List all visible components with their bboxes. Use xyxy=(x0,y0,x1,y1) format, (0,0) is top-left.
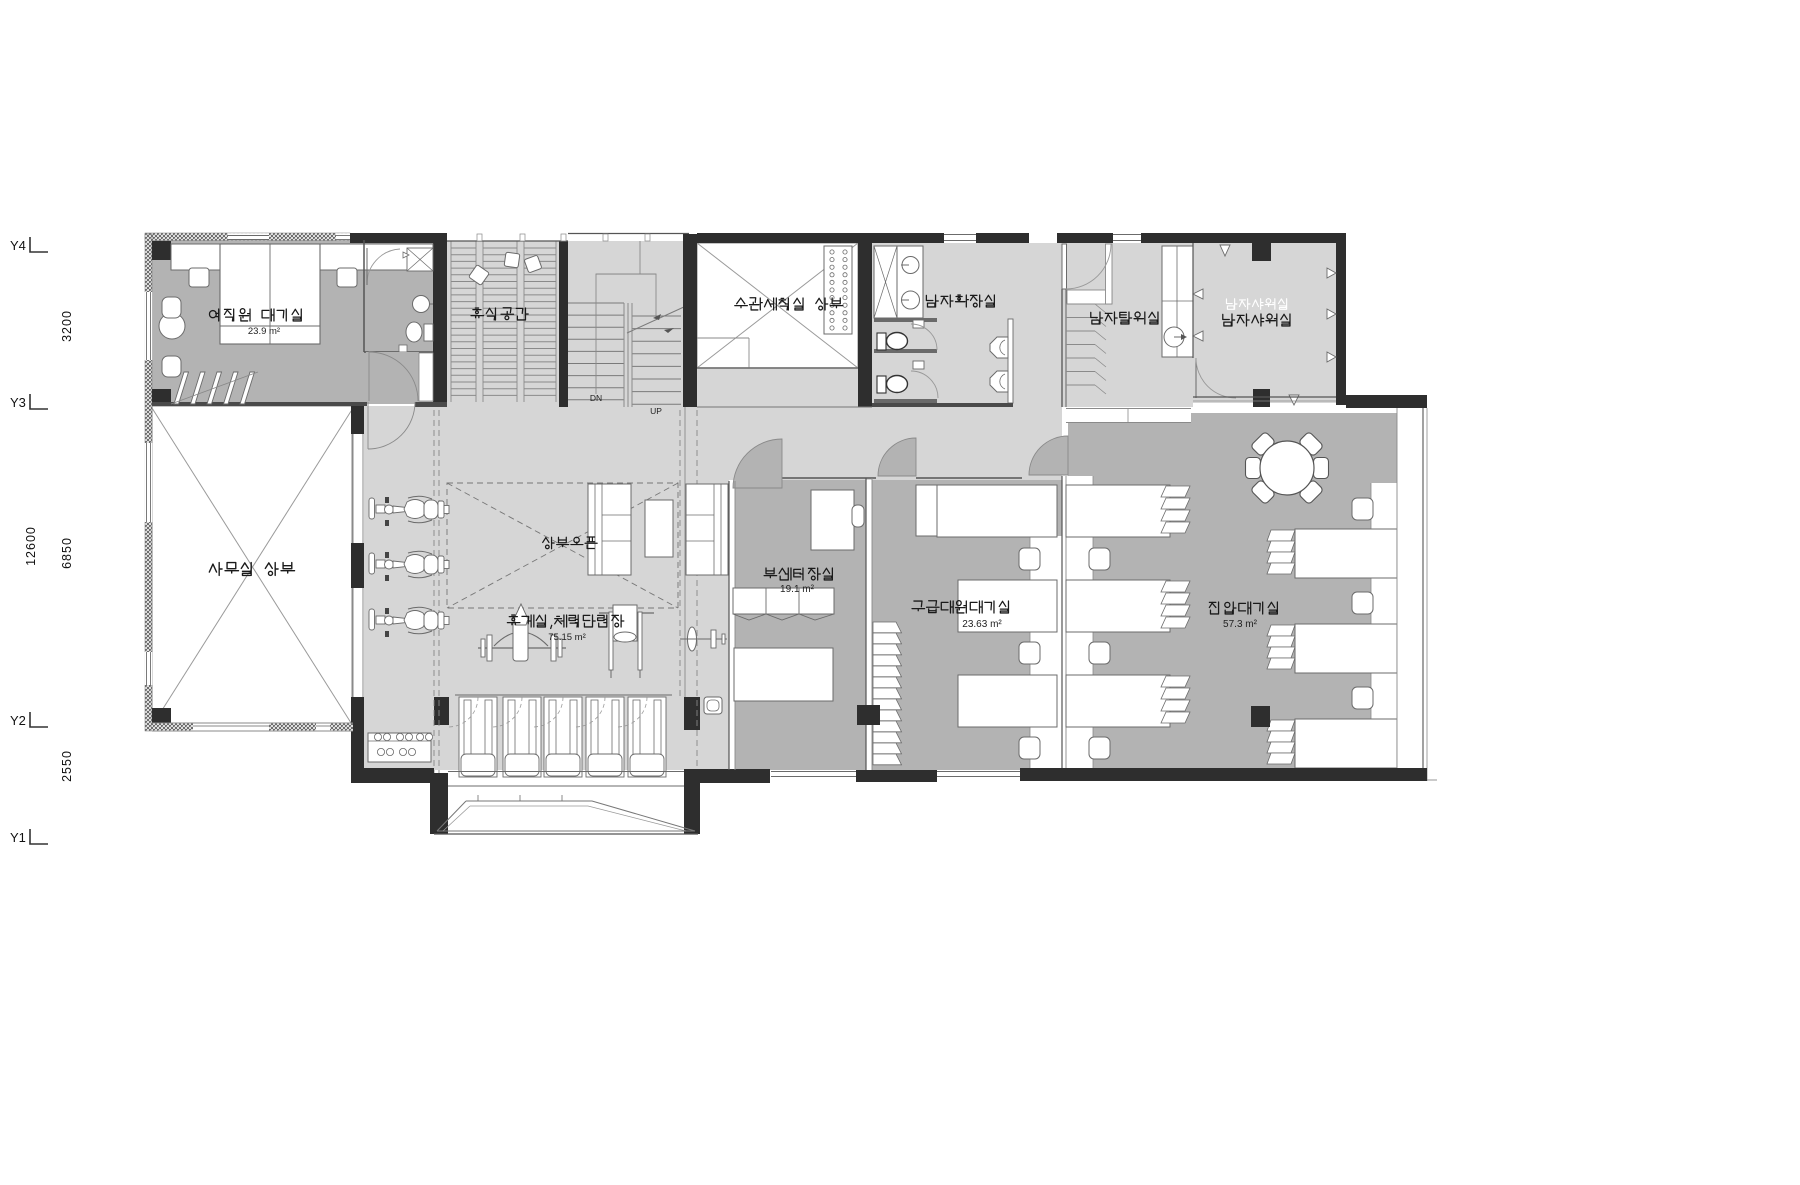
svg-text:23.63 m²: 23.63 m² xyxy=(962,619,1002,630)
svg-text:23.9 m²: 23.9 m² xyxy=(248,326,280,337)
svg-text:UP: UP xyxy=(650,406,662,416)
svg-text:6850: 6850 xyxy=(60,537,74,569)
svg-text:3200: 3200 xyxy=(60,310,74,342)
svg-text:2550: 2550 xyxy=(60,750,74,782)
svg-text:Y4: Y4 xyxy=(10,238,26,253)
svg-text:Y2: Y2 xyxy=(10,713,26,728)
svg-text:57.3 m²: 57.3 m² xyxy=(1223,619,1258,630)
svg-text:DN: DN xyxy=(590,393,602,403)
svg-text:Y3: Y3 xyxy=(10,395,26,410)
svg-text:75.15 m²: 75.15 m² xyxy=(548,632,586,643)
svg-text:Y1: Y1 xyxy=(10,830,26,845)
svg-text:19.1 m²: 19.1 m² xyxy=(780,584,815,595)
svg-text:12600: 12600 xyxy=(24,526,38,566)
